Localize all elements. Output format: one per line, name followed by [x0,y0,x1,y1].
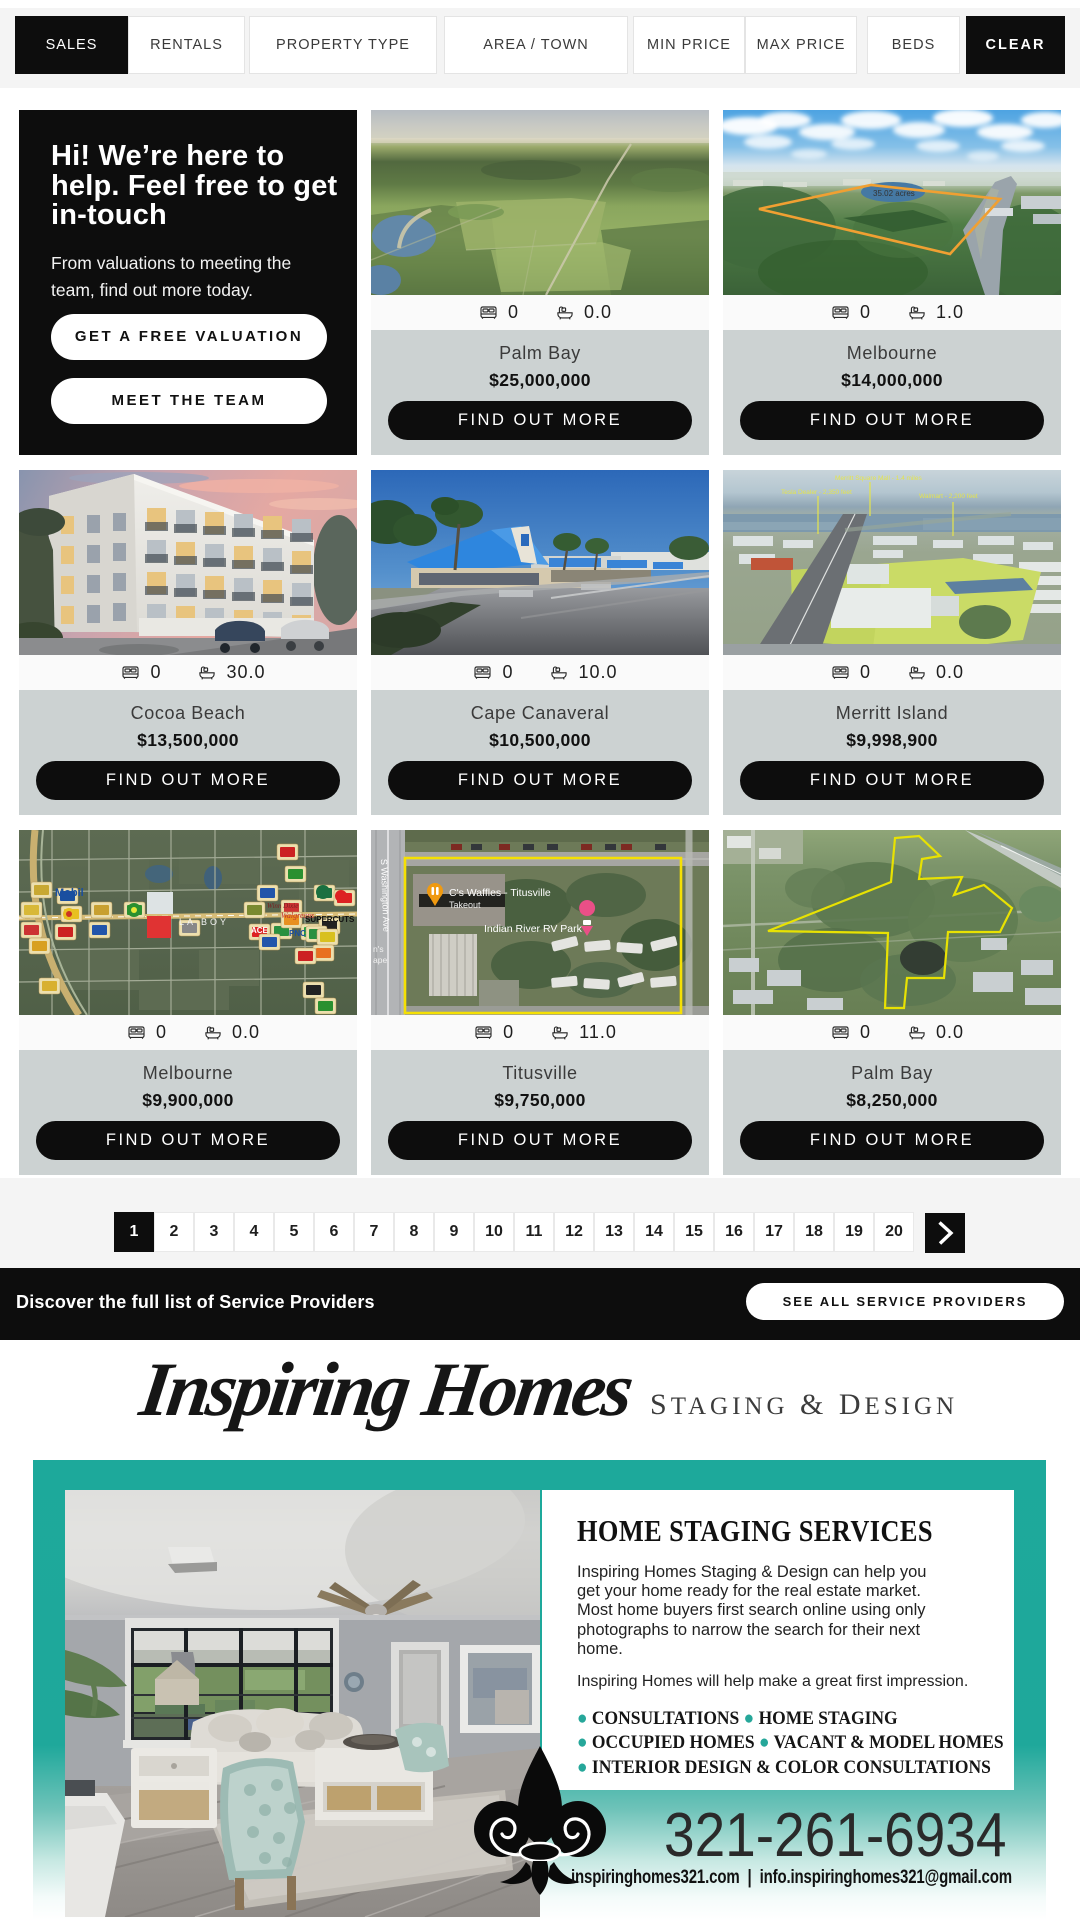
svg-text:Walgreens: Walgreens [281,911,314,920]
svg-text:Takeout: Takeout [449,900,481,910]
svg-text:Walmart - 2,200 feet: Walmart - 2,200 feet [919,493,978,500]
svg-text:STAGING & DESIGN: STAGING & DESIGN [650,1388,958,1421]
svg-text:PNC: PNC [289,929,306,938]
svg-text:ape: ape [373,955,387,965]
svg-text:Merritt Square Mall - 1.4 mile: Merritt Square Mall - 1.4 miles [835,475,922,482]
svg-text:Winn Dixie: Winn Dixie [267,902,298,910]
svg-text:n's: n's [373,944,384,954]
svg-text:Tesla Dealer - 2,350 feet: Tesla Dealer - 2,350 feet [781,489,852,496]
svg-text:LA BOY: LA BOY [179,917,229,927]
svg-text:C's Waffles - Titusville: C's Waffles - Titusville [449,887,551,899]
svg-text:Inspiring Homes: Inspiring Homes [134,1346,637,1432]
svg-text:ACE: ACE [251,926,269,935]
svg-text:Indian River RV Park: Indian River RV Park [484,923,583,935]
svg-text:35.02 acres: 35.02 acres [873,189,915,198]
svg-text:Mobil: Mobil [55,887,84,899]
